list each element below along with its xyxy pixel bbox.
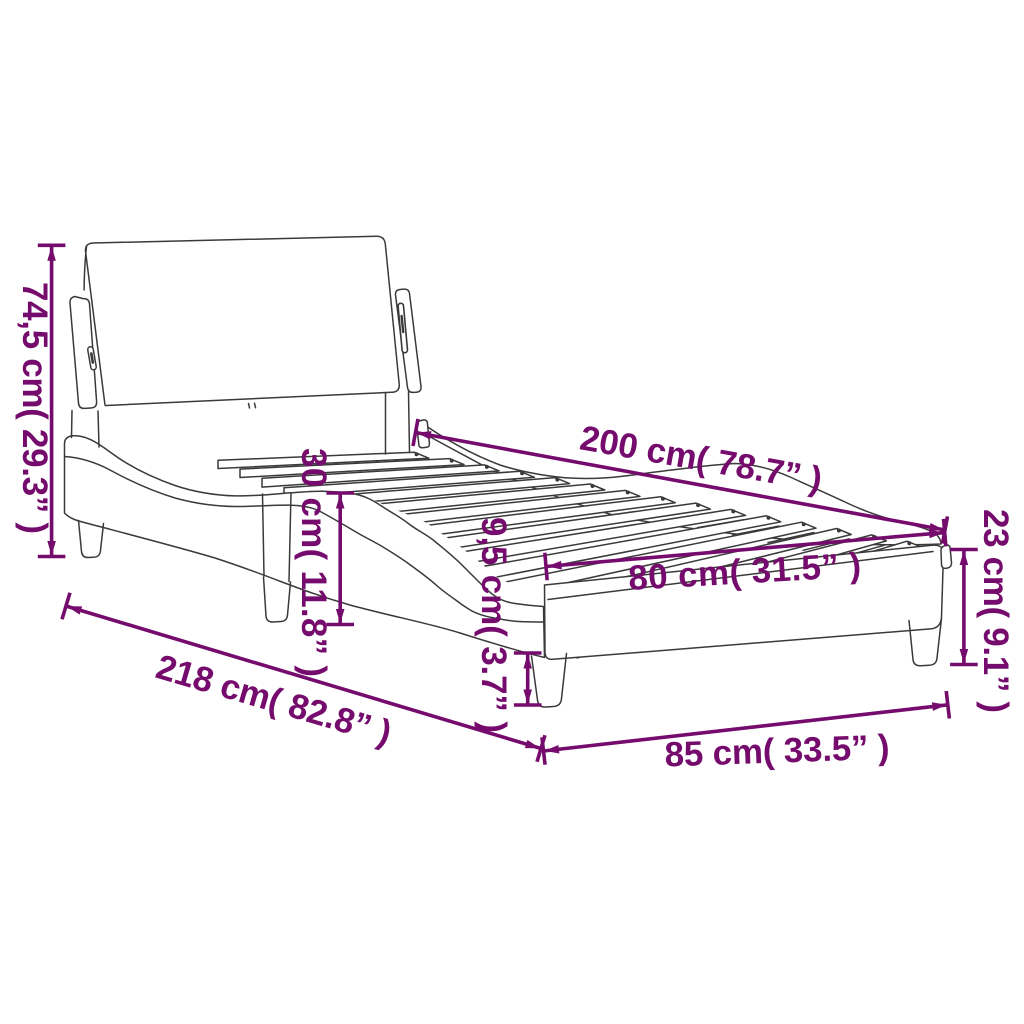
svg-text:74,5 cm( 29.3” ): 74,5 cm( 29.3” ) [15,282,54,534]
svg-text:85 cm( 33.5” ): 85 cm( 33.5” ) [664,728,890,775]
svg-text:30 cm( 11.8” ): 30 cm( 11.8” ) [294,448,333,677]
svg-text:23 cm( 9.1” ): 23 cm( 9.1” ) [976,509,1015,713]
svg-text:9,5 cm( 3.7” ): 9,5 cm( 3.7” ) [474,517,513,733]
